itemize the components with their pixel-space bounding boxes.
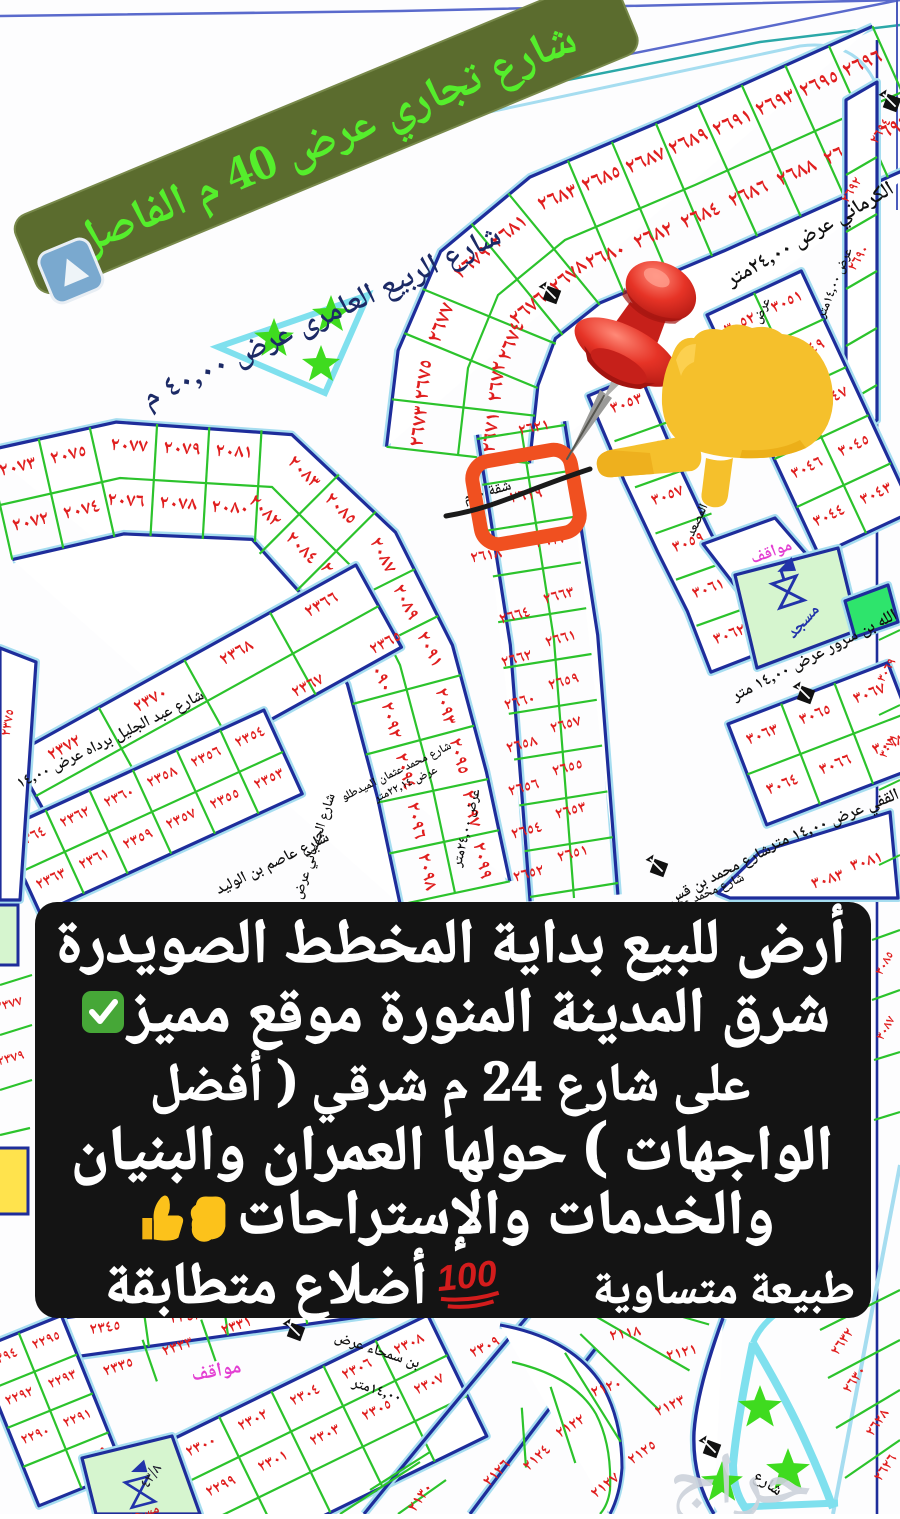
svg-text:100: 100	[435, 1252, 499, 1299]
